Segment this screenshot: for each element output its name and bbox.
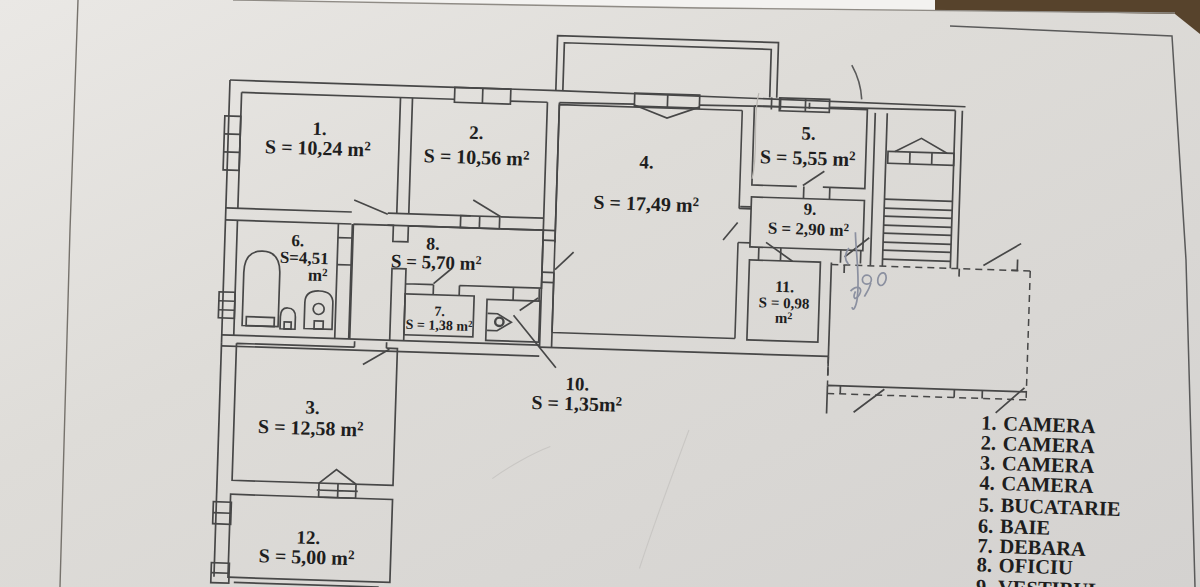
svg-text:11.: 11. <box>775 279 795 297</box>
svg-text:8.: 8. <box>426 233 440 253</box>
svg-text:CAMERA: CAMERA <box>1001 473 1094 498</box>
svg-text:S = 2,90 m2: S = 2,90 m2 <box>768 218 850 240</box>
svg-text:5.: 5. <box>801 123 816 144</box>
svg-text:S = 17,49 m2: S = 17,49 m2 <box>593 191 699 217</box>
svg-text:S = 10,56 m2: S = 10,56 m2 <box>423 144 529 170</box>
svg-text:4.: 4. <box>639 152 654 173</box>
svg-text:7.: 7. <box>434 305 445 320</box>
svg-text:OFICIU: OFICIU <box>998 555 1073 579</box>
svg-text:S = 1,35m2: S = 1,35m2 <box>531 391 622 417</box>
svg-text:9.: 9. <box>803 200 816 219</box>
svg-text:S = 5,55 m2: S = 5,55 m2 <box>760 145 856 171</box>
svg-text:9.: 9. <box>976 576 992 587</box>
svg-text:S = 1,38 m2: S = 1,38 m2 <box>405 317 473 335</box>
svg-text:S = 12,58 m2: S = 12,58 m2 <box>258 415 364 441</box>
svg-text:5.: 5. <box>978 494 994 516</box>
svg-text:2.: 2. <box>469 123 484 144</box>
svg-text:S = 5,70 m2: S = 5,70 m2 <box>391 250 482 275</box>
svg-text:3.: 3. <box>305 398 320 419</box>
svg-text:4.: 4. <box>979 472 995 494</box>
svg-text:S = 10,24 m2: S = 10,24 m2 <box>265 135 371 161</box>
svg-text:8.: 8. <box>976 554 992 576</box>
svg-text:S = 5,00 m2: S = 5,00 m2 <box>258 544 354 570</box>
